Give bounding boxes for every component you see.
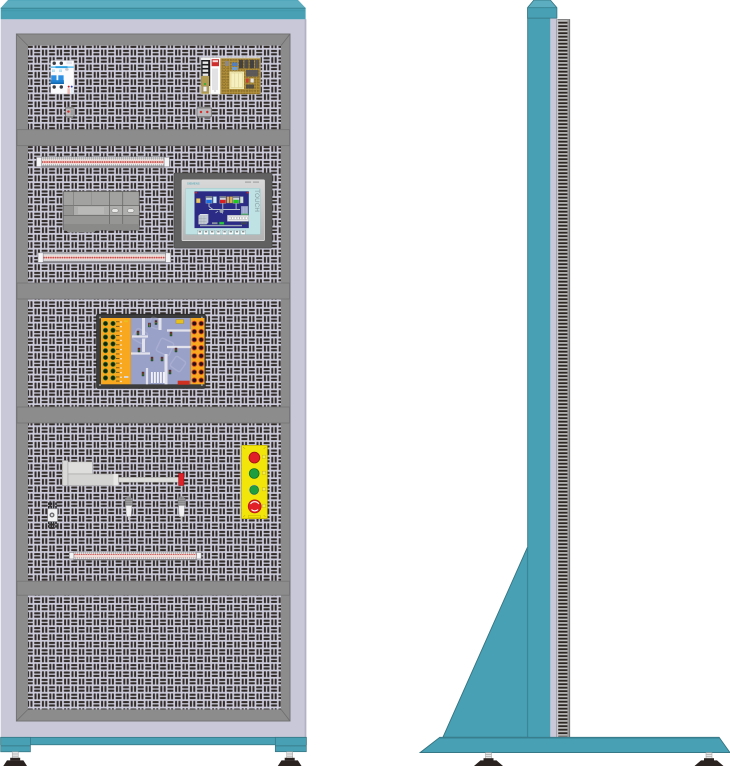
svg-text:TOUCH: TOUCH: [253, 189, 260, 212]
svg-text:SIEMENS: SIEMENS: [187, 182, 200, 186]
